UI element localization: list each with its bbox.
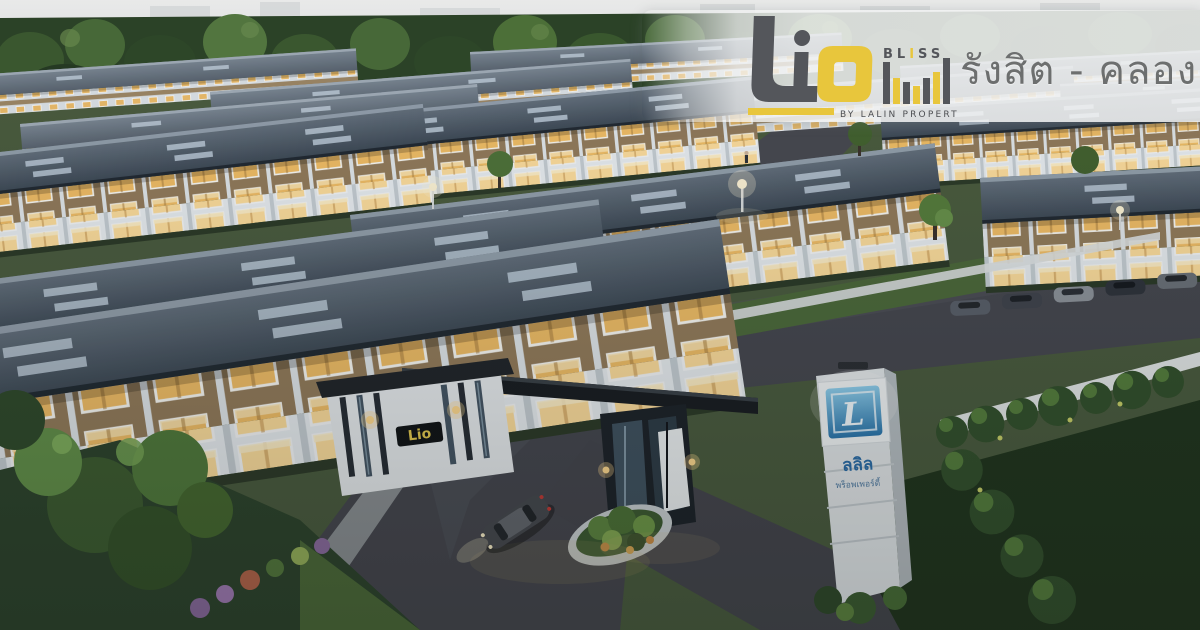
brand-underline xyxy=(748,108,834,115)
promo-image: Lio xyxy=(0,0,1200,630)
brand-letter-o xyxy=(817,46,873,102)
brand-letter-i-dot xyxy=(794,30,811,46)
equalizer-bars-icon xyxy=(883,58,950,104)
brand-overlay-band: BLISS BY LALIN PROPERTY รังสิต - คลอง 4 xyxy=(642,10,1200,122)
brand-sub-bliss: BLISS xyxy=(883,47,944,62)
brand-byline: BY LALIN PROPERTY xyxy=(840,110,958,120)
lio-bliss-logo: BLISS BY LALIN PROPERTY xyxy=(746,12,958,122)
project-location-text: รังสิต - คลอง 4 xyxy=(960,38,1198,102)
brand-letter-l xyxy=(751,16,820,102)
brand-letter-i xyxy=(793,52,808,86)
